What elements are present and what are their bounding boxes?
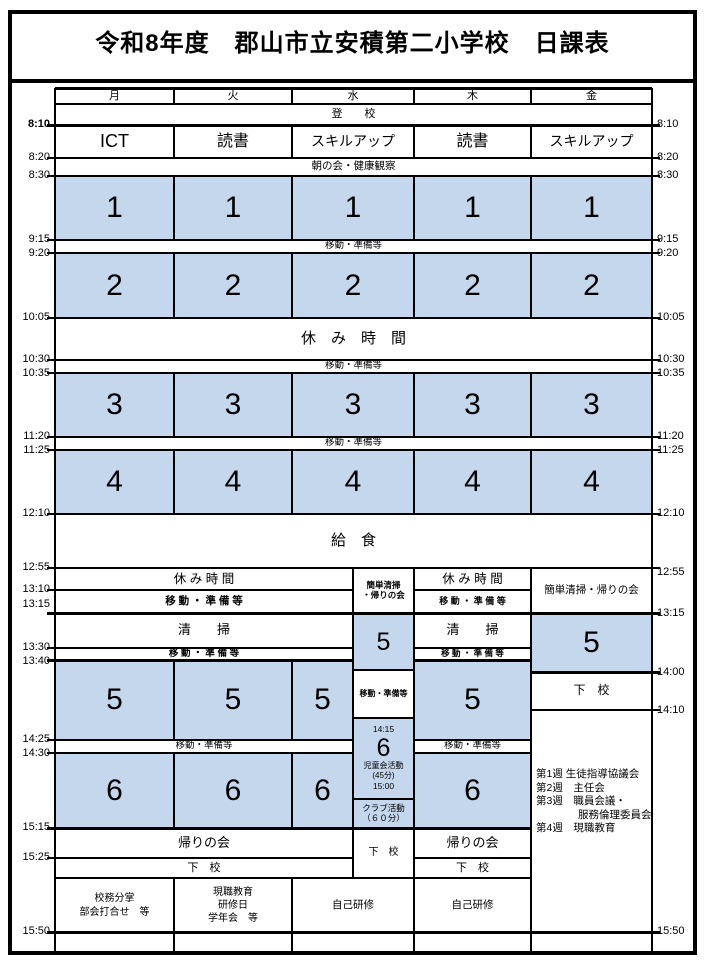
timetable-page: 令和8年度 郡山市立安積第二小学校 日課表 — [0, 0, 705, 965]
cell-geko-thu: 下 校 — [414, 858, 531, 878]
cell-period4-fri: 4 — [531, 450, 652, 514]
cell-morning-wed: スキルアップ — [292, 125, 414, 158]
cell-seiso-montowed: 清 掃 — [55, 613, 353, 648]
time-right-1210: 12:10 — [657, 506, 701, 521]
cell-ido-wedright: 移動・準備等 — [353, 670, 414, 718]
time-right-1400: 14:00 — [657, 665, 701, 680]
cell-afterschool-tue: 現職教育 研修日 学年会 等 — [174, 878, 292, 933]
afterschool-mon-line2: 部会打合せ 等 — [80, 906, 150, 920]
time-left-1005: 10:05 — [9, 310, 50, 325]
time-left-1550: 15:50 — [9, 924, 50, 939]
cell-ido-thu-1425: 移動・準備等 — [414, 740, 531, 753]
cell-ido-2: 移動・準備等 — [55, 360, 652, 373]
time-left-0830: 8:30 — [9, 168, 50, 183]
cell-period5-wedleft: 5 — [292, 660, 353, 740]
kantan-line2: ・帰りの会 — [362, 591, 405, 601]
period6-number: 6 — [377, 735, 391, 761]
page-title: 令和8年度 郡山市立安積第二小学校 日課表 — [8, 10, 697, 79]
page-title-text: 令和8年度 郡山市立安積第二小学校 日課表 — [95, 31, 609, 58]
time-right-1410: 14:10 — [657, 703, 701, 718]
club-line2: （６０分） — [362, 814, 405, 824]
afterschool-tue-line2: 研修日 — [218, 899, 248, 912]
cell-morning-mon: ICT — [55, 125, 174, 158]
time-left-1315: 13:15 — [9, 597, 50, 612]
cell-afterschool-wed: 自己研修 — [292, 878, 414, 933]
time-right-0810: 8:10 — [657, 117, 701, 132]
cell-period4-tue: 4 — [174, 450, 292, 514]
time-right-0920: 9:20 — [657, 246, 701, 261]
cell-kantan-wedright: 簡単清掃 ・帰りの会 — [353, 568, 414, 613]
cell-period4-thu: 4 — [414, 450, 531, 514]
afterschool-tue-line3: 学年会 等 — [208, 912, 258, 925]
time-left-1515: 15:15 — [9, 820, 50, 835]
cell-geko-montowed: 下 校 — [55, 858, 353, 878]
cell-afterschool-thu: 自己研修 — [414, 878, 531, 933]
weekly-note-3: 第3週 職員会議・ — [536, 795, 626, 809]
cell-period1-fri: 1 — [531, 176, 652, 240]
time-right-1005: 10:05 — [657, 310, 701, 325]
time-left-1030: 10:30 — [9, 352, 50, 367]
title-divider — [8, 79, 697, 83]
day-label: 月 — [109, 90, 120, 102]
cell-period5-mon: 5 — [55, 660, 174, 740]
cell-period5-tue: 5 — [174, 660, 292, 740]
time-right-0830: 8:30 — [657, 168, 701, 183]
weekly-note-1: 第1週 生徒指導協議会 — [536, 768, 639, 782]
time-right-0915: 9:15 — [657, 232, 701, 247]
header-day-tue: 火 — [174, 88, 292, 104]
time-right-1255: 12:55 — [657, 565, 701, 580]
cell-toko: 登 校 — [55, 104, 652, 125]
cell-period1-wed: 1 — [292, 176, 414, 240]
cell-period6-wedright: 14:15 6 児童会活動 (45分) 15:00 — [353, 718, 414, 799]
weekly-note-4: 服務倫理委員会 — [536, 809, 652, 823]
time-left-0920: 9:20 — [9, 246, 50, 261]
cell-ido-thu-1330: 移 動 ・ 準 備 等 — [414, 648, 531, 660]
day-label: 木 — [467, 90, 478, 102]
day-label: 水 — [348, 90, 359, 102]
cell-period1-thu: 1 — [414, 176, 531, 240]
cell-period3-thu: 3 — [414, 373, 531, 437]
time-right-1550: 15:50 — [657, 924, 701, 939]
time-right-1035: 10:35 — [657, 366, 701, 381]
day-label: 火 — [228, 90, 239, 102]
jidokai-line2: (45分) — [372, 771, 394, 781]
time-left-1035: 10:35 — [9, 366, 50, 381]
cell-fri-weekly-notes: 第1週 生徒指導協議会 第2週 主任会 第3週 職員会議・ 服務倫理委員会 第4… — [531, 710, 652, 933]
cell-period2-wed: 2 — [292, 253, 414, 318]
cell-morning-thu: 読書 — [414, 125, 531, 158]
jidokai-line3: 15:00 — [373, 781, 394, 792]
jidokai-line1: 児童会活動 — [364, 761, 404, 771]
cell-period1-tue: 1 — [174, 176, 292, 240]
cell-period6-tue: 6 — [174, 753, 292, 828]
time-right-1120: 11:20 — [657, 429, 701, 444]
cell-period6-wedleft: 6 — [292, 753, 353, 828]
time-right-0820: 8:20 — [657, 150, 701, 165]
time-left-1125: 11:25 — [9, 443, 50, 458]
cell-period6-mon: 6 — [55, 753, 174, 828]
time-right-1030: 10:30 — [657, 352, 701, 367]
weekly-note-5: 第4週 現職教育 — [536, 822, 615, 836]
time-right-1125: 11:25 — [657, 443, 701, 458]
cell-period2-thu: 2 — [414, 253, 531, 318]
cell-period2-mon: 2 — [55, 253, 174, 318]
cell-period2-fri: 2 — [531, 253, 652, 318]
cell-ido-montowed-1310: 移 動 ・ 準 備 等 — [55, 590, 353, 613]
afterschool-tue-line1: 現職教育 — [213, 886, 253, 899]
cell-ido-thu-1310: 移 動 ・ 準 備 等 — [414, 590, 531, 613]
cell-morning-tue: 読書 — [174, 125, 292, 158]
cell-morning-fri: スキルアップ — [531, 125, 652, 158]
cell-period1-mon: 1 — [55, 176, 174, 240]
cell-yasumi-montowed: 休 み 時 間 — [55, 568, 353, 590]
time-left-0915: 9:15 — [9, 232, 50, 247]
cell-period4-mon: 4 — [55, 450, 174, 514]
time-left-1210: 12:10 — [9, 506, 50, 521]
cell-kaeri-montowed: 帰りの会 — [55, 828, 353, 858]
cell-ido-1: 移動・準備等 — [55, 240, 652, 253]
time-left-1430: 14:30 — [9, 746, 50, 761]
cell-kyushoku: 給 食 — [55, 514, 652, 568]
cell-ido-montowed-1425: 移動・準備等 — [55, 740, 353, 753]
time-left-1330: 13:30 — [9, 640, 50, 655]
cell-period3-mon: 3 — [55, 373, 174, 437]
cell-club-wedright: クラブ活動 （６０分） — [353, 799, 414, 828]
time-left-1340: 13:40 — [9, 654, 50, 669]
cell-kantan-fri: 簡単清掃・帰りの会 — [531, 568, 652, 613]
cell-afterschool-mon: 校務分掌 部会打合せ 等 — [55, 878, 174, 933]
time-left-1120: 11:20 — [9, 429, 50, 444]
header-day-fri: 金 — [531, 88, 652, 104]
time-left-1255: 12:55 — [9, 560, 50, 575]
time-right-1315: 13:15 — [657, 606, 701, 621]
cell-period3-wed: 3 — [292, 373, 414, 437]
header-day-mon: 月 — [55, 88, 174, 104]
cell-period3-tue: 3 — [174, 373, 292, 437]
time-left-1310: 13:10 — [9, 582, 50, 597]
cell-kaeri-thu: 帰りの会 — [414, 828, 531, 858]
cell-asanokai: 朝の会・健康観察 — [55, 158, 652, 176]
time-left-1525: 15:25 — [9, 850, 50, 865]
cell-period6-thu: 6 — [414, 753, 531, 828]
day-label: 金 — [586, 90, 597, 102]
cell-geko-wedright: 下 校 — [353, 828, 414, 878]
afterschool-mon-line1: 校務分掌 — [95, 892, 135, 906]
cell-ido-montowed-1330: 移 動 ・ 準 備 等 — [55, 648, 353, 660]
time-left-0820: 8:20 — [9, 150, 50, 165]
cell-yasumi-wide: 休 み 時 間 — [55, 318, 652, 360]
header-day-thu: 木 — [414, 88, 531, 104]
cell-seiso-thu: 清 掃 — [414, 613, 531, 648]
header-day-wed: 水 — [292, 88, 414, 104]
cell-ido-3: 移動・準備等 — [55, 437, 652, 450]
cell-period3-fri: 3 — [531, 373, 652, 437]
weekly-note-2: 第2週 主任会 — [536, 782, 605, 796]
cell-yasumi-thu: 休 み 時 間 — [414, 568, 531, 590]
time-left-1425: 14:25 — [9, 732, 50, 747]
cell-period5-thu: 5 — [414, 660, 531, 740]
cell-geko-fri: 下 校 — [531, 672, 652, 710]
time-left-0810: 8:10 — [9, 117, 50, 132]
cell-period5-fri: 5 — [531, 613, 652, 672]
cell-period5-wedright: 5 — [353, 613, 414, 670]
cell-period4-wed: 4 — [292, 450, 414, 514]
cell-period2-tue: 2 — [174, 253, 292, 318]
